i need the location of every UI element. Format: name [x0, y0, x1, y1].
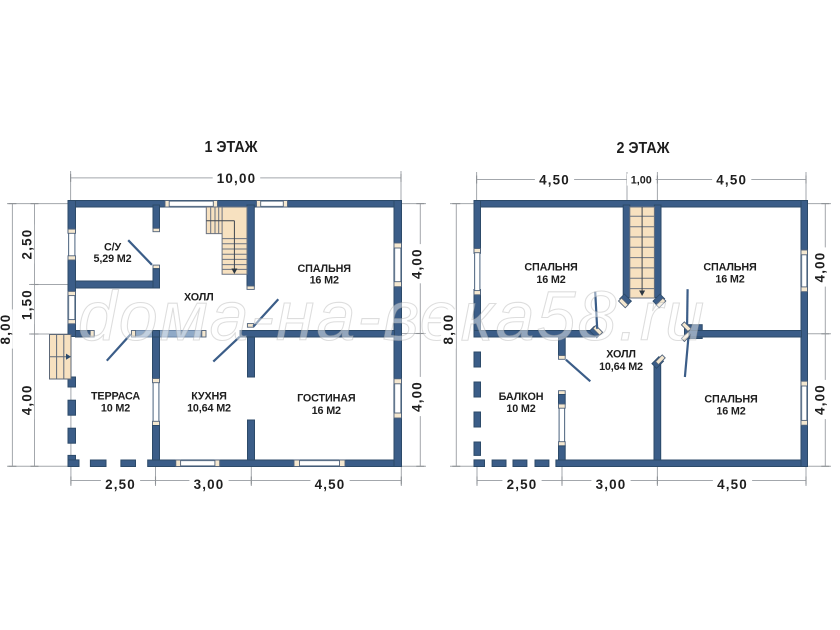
svg-text:10 М2: 10 М2 — [506, 403, 535, 415]
svg-text:1,50: 1,50 — [19, 289, 34, 320]
svg-text:4,50: 4,50 — [716, 172, 747, 187]
svg-text:4,00: 4,00 — [19, 384, 34, 415]
svg-text:1 ЭТАЖ: 1 ЭТАЖ — [205, 139, 259, 156]
svg-text:ТЕРРАСА: ТЕРРАСА — [91, 390, 140, 402]
svg-text:16 М2: 16 М2 — [536, 274, 565, 286]
svg-text:4,50: 4,50 — [539, 172, 570, 187]
svg-text:СПАЛЬНЯ: СПАЛЬНЯ — [298, 263, 352, 275]
svg-text:16 М2: 16 М2 — [715, 273, 744, 285]
svg-text:10,64 М2: 10,64 М2 — [599, 361, 643, 373]
svg-text:2 ЭТАЖ: 2 ЭТАЖ — [617, 140, 671, 157]
svg-text:БАЛКОН: БАЛКОН — [499, 391, 544, 403]
svg-text:4,50: 4,50 — [717, 477, 748, 492]
svg-text:4,00: 4,00 — [410, 381, 425, 412]
svg-text:1,00: 1,00 — [631, 174, 652, 186]
svg-text:4,50: 4,50 — [315, 477, 346, 492]
svg-text:dома-на-века58.ru: dома-на-века58.ru — [78, 277, 706, 355]
svg-text:3,00: 3,00 — [596, 477, 627, 492]
svg-text:3,00: 3,00 — [194, 477, 225, 492]
svg-text:10,64 М2: 10,64 М2 — [187, 403, 231, 415]
svg-text:2,50: 2,50 — [507, 477, 538, 492]
svg-text:4,00: 4,00 — [813, 384, 828, 415]
svg-text:5,29 М2: 5,29 М2 — [94, 253, 132, 265]
svg-text:КУХНЯ: КУХНЯ — [191, 390, 227, 402]
svg-text:2,50: 2,50 — [105, 477, 136, 492]
svg-text:10 М2: 10 М2 — [101, 402, 130, 414]
svg-text:10,00: 10,00 — [217, 171, 257, 186]
svg-text:2,50: 2,50 — [19, 229, 34, 260]
svg-text:СПАЛЬНЯ: СПАЛЬНЯ — [524, 261, 578, 273]
svg-text:СПАЛЬНЯ: СПАЛЬНЯ — [703, 261, 757, 273]
svg-text:4,00: 4,00 — [813, 252, 828, 283]
svg-text:8,00: 8,00 — [0, 314, 13, 345]
svg-text:СПАЛЬНЯ: СПАЛЬНЯ — [704, 393, 758, 405]
svg-text:8,00: 8,00 — [441, 314, 456, 345]
svg-text:16 М2: 16 М2 — [716, 406, 745, 418]
svg-text:4,00: 4,00 — [410, 248, 425, 279]
svg-text:ХОЛЛ: ХОЛЛ — [184, 292, 214, 304]
svg-text:С/У: С/У — [104, 241, 121, 253]
svg-text:ХОЛЛ: ХОЛЛ — [606, 349, 636, 361]
svg-text:16 М2: 16 М2 — [310, 274, 339, 286]
svg-text:16 М2: 16 М2 — [312, 405, 341, 417]
svg-text:ГОСТИНАЯ: ГОСТИНАЯ — [297, 392, 356, 404]
